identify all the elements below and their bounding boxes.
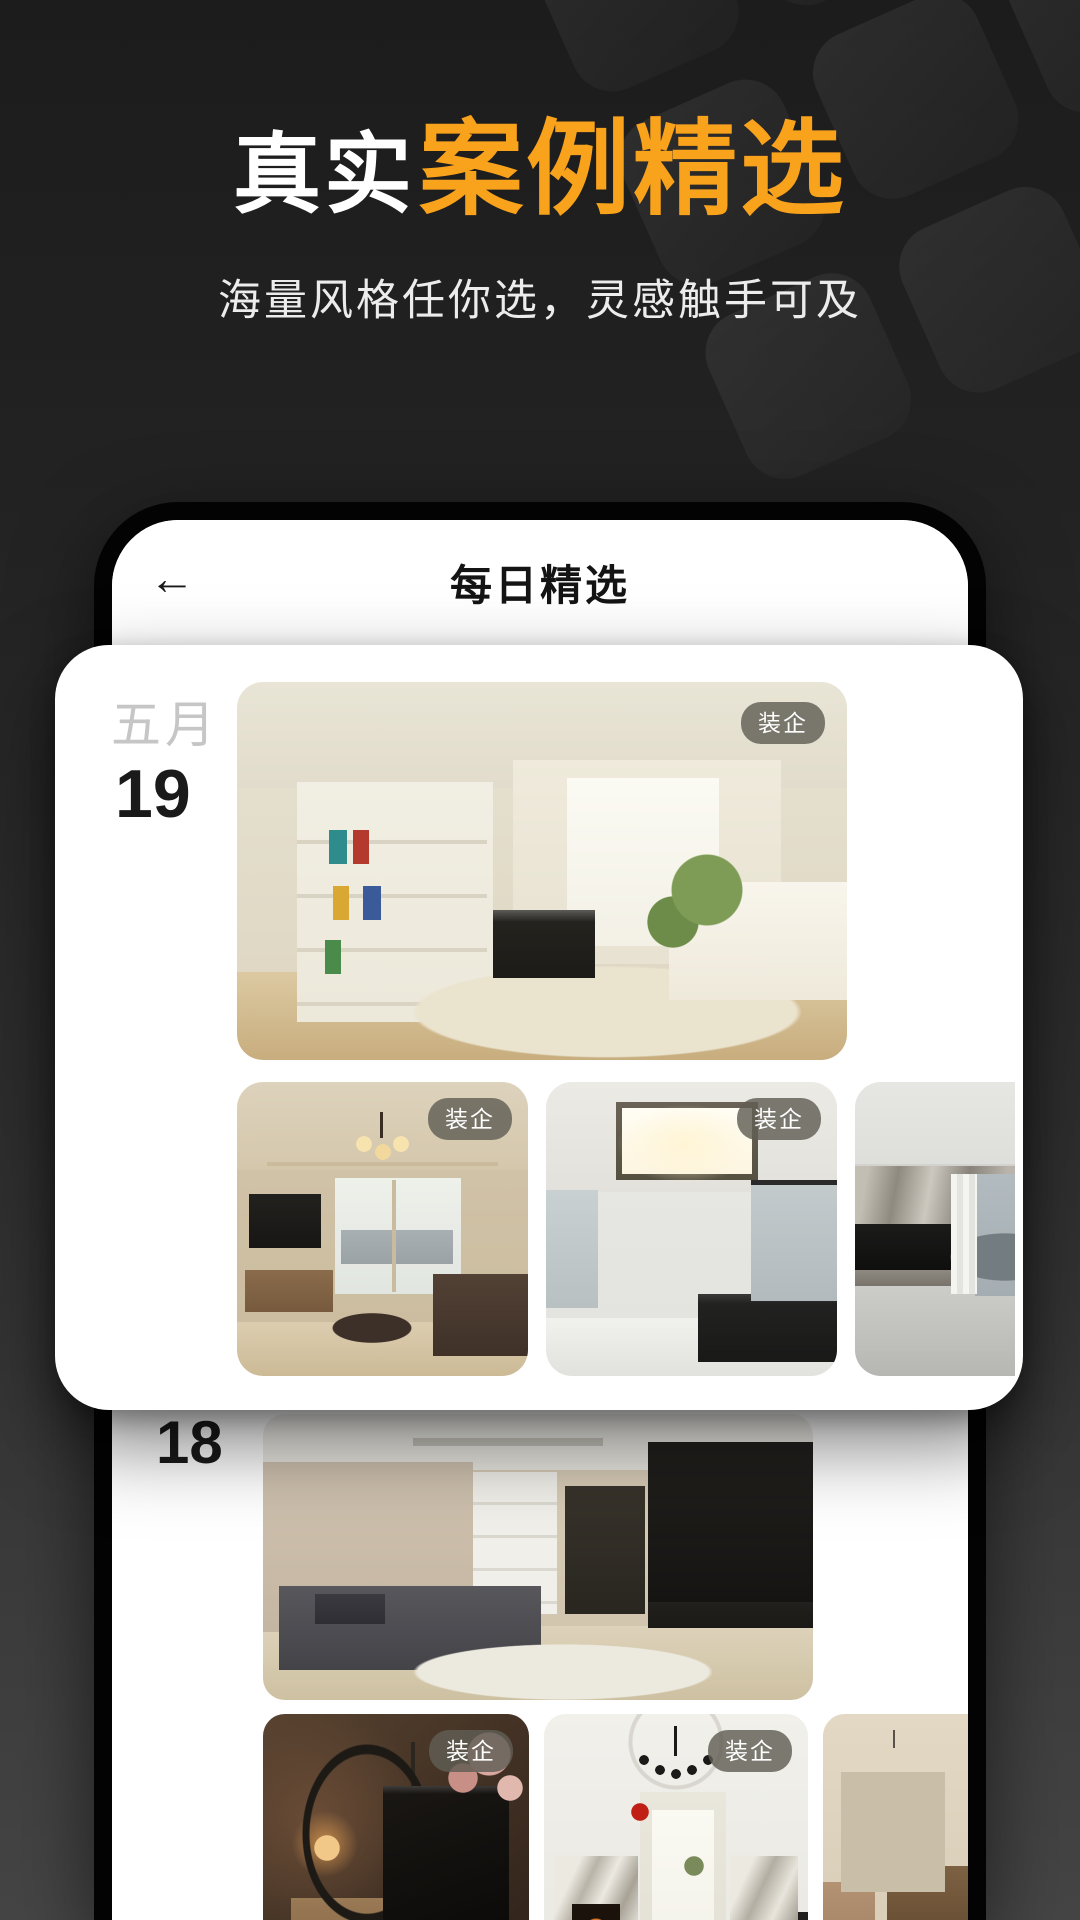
page-subtitle: 海量风格任你选，灵感触手可及	[0, 266, 1080, 328]
case-photo-grey-living-room-mountain-view[interactable]	[855, 1082, 1015, 1376]
hero-section: 真实 案例精选 海量风格任你选，灵感触手可及	[0, 118, 1080, 328]
case-photo-cream-living-room-bookshelf[interactable]: 装企	[237, 682, 847, 1060]
vendor-badge: 装企	[428, 1098, 512, 1140]
vendor-badge: 装企	[708, 1730, 792, 1772]
date-month: 五月	[111, 685, 219, 757]
vendor-badge: 装企	[737, 1098, 821, 1140]
tile	[713, 0, 945, 19]
case-photo-beige-room-speaker[interactable]	[823, 1714, 968, 1920]
vendor-badge: 装企	[741, 702, 825, 744]
page-title: 真实 案例精选	[0, 118, 1080, 222]
case-photo-warm-living-room-chandelier[interactable]: 装企	[237, 1082, 528, 1376]
screen-title: 每日精选	[112, 552, 968, 613]
date-day-19: 19	[115, 755, 191, 833]
tile	[993, 0, 1080, 126]
daily-pick-card: 五月 19 装企 装企 装企	[55, 645, 1023, 1410]
app-header: ← 每日精选	[112, 520, 968, 632]
case-photo-arched-glass-partition[interactable]: 装企	[263, 1714, 529, 1920]
title-highlight: 案例精选	[419, 118, 847, 222]
tile	[520, 0, 752, 105]
case-photo-apartment-black-media-wall[interactable]	[263, 1414, 813, 1700]
case-photo-classic-white-chandelier[interactable]: 装企	[544, 1714, 808, 1920]
case-photo-white-living-room-ceiling-light[interactable]: 装企	[546, 1082, 837, 1376]
title-prefix: 真实	[233, 131, 415, 219]
date-day-18: 18	[156, 1408, 223, 1477]
promo-page: 真实 案例精选 海量风格任你选，灵感触手可及 ← 每日精选 18 装企 装企 五…	[0, 0, 1080, 1920]
vendor-badge: 装企	[429, 1730, 513, 1772]
